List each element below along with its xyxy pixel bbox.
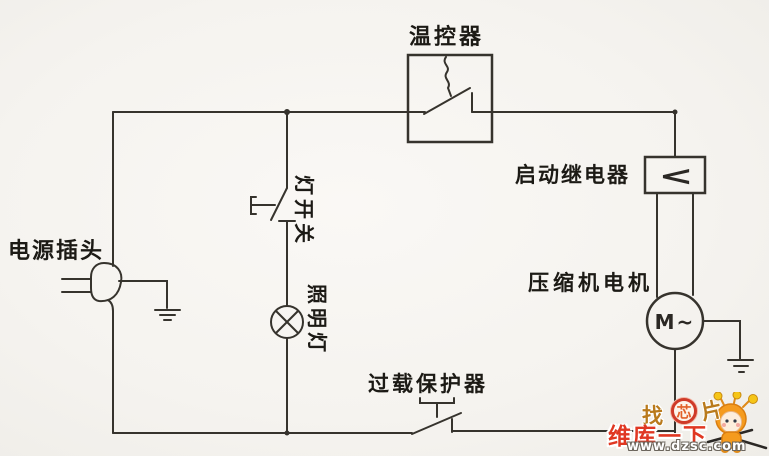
ground-icon-motor [703, 321, 753, 372]
power-plug-icon [62, 263, 121, 301]
ground-icon-plug [119, 281, 180, 320]
refrigerator-circuit-diagram: < M~ 温控器 启动继电器 压缩机电机 电源插头 灯开关 照明灯 过载保护器 [0, 0, 769, 456]
lamp-icon [271, 306, 303, 338]
compressor-motor-label: 压缩机电机 [528, 272, 653, 295]
light-switch-icon [251, 188, 295, 221]
thermostat-switch-icon [424, 57, 472, 114]
overload-protector-icon [412, 398, 461, 434]
relay-symbol: < [658, 160, 693, 191]
relay-motor-wires [657, 193, 693, 297]
junction-dot [285, 431, 290, 436]
motor-symbol: M~ [655, 310, 696, 334]
junction-dot [284, 109, 290, 115]
watermark-url-text: www.dzsc.com [627, 439, 747, 454]
light-switch-label: 灯开关 [293, 172, 315, 250]
wire-left-lower [108, 300, 113, 433]
start-relay-label: 启动继电器 [515, 164, 630, 187]
dzsc-watermark: 找 芯 片 维库一下 www.dzsc.com [600, 392, 769, 456]
power-plug-label: 电源插头 [8, 240, 104, 264]
overload-protector-label: 过载保护器 [368, 373, 488, 396]
wire-bottom [113, 431, 675, 433]
junction-dot [673, 110, 678, 115]
thermostat-label: 温控器 [409, 26, 484, 50]
lighting-lamp-label: 照明灯 [306, 281, 328, 359]
